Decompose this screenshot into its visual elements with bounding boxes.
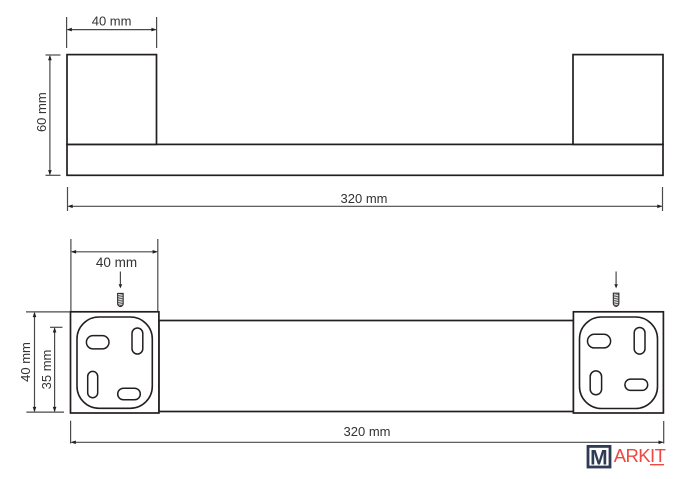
svg-text:320 mm: 320 mm (341, 191, 388, 206)
svg-text:ARKIT: ARKIT (614, 445, 666, 466)
svg-text:M: M (590, 446, 608, 469)
svg-text:60 mm: 60 mm (34, 92, 49, 132)
svg-text:35 mm: 35 mm (39, 350, 54, 390)
svg-text:40 mm: 40 mm (96, 255, 137, 270)
svg-text:320 mm: 320 mm (344, 424, 391, 439)
svg-text:40 mm: 40 mm (18, 342, 33, 382)
svg-text:40 mm: 40 mm (92, 14, 132, 29)
